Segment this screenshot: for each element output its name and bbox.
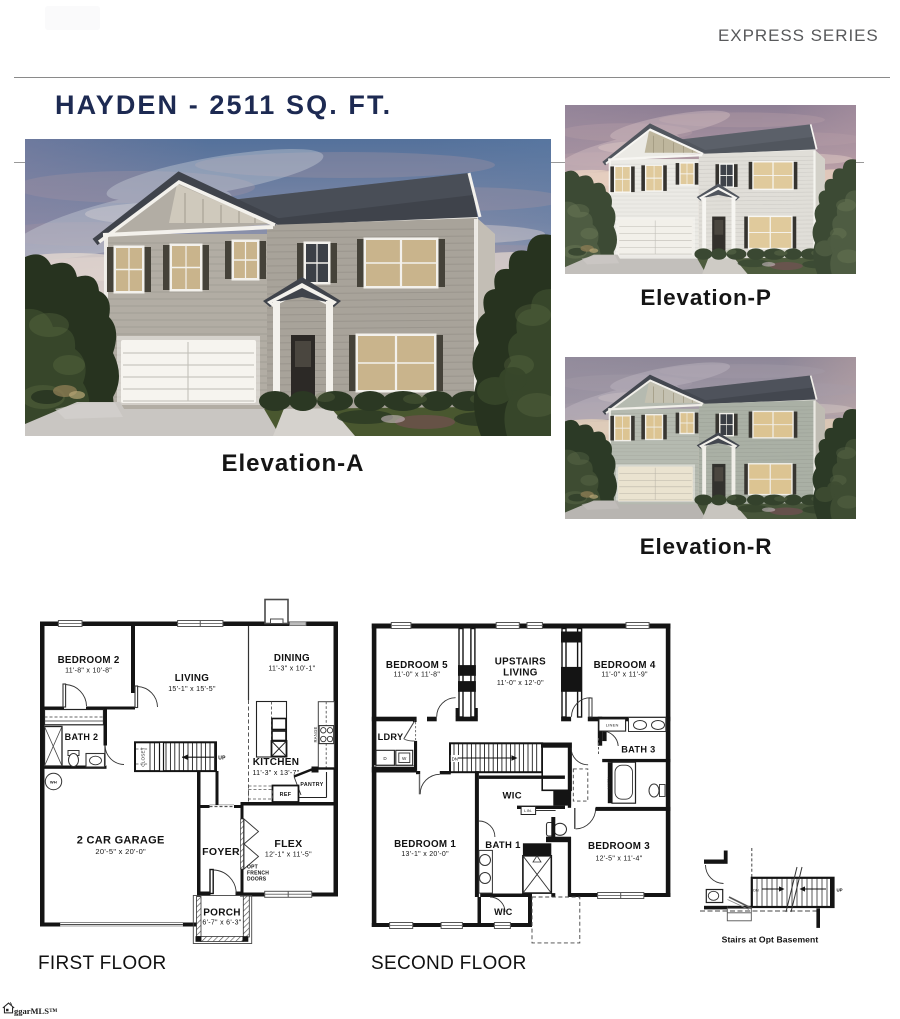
svg-text:13'-1" x 20'-0": 13'-1" x 20'-0": [401, 851, 449, 858]
svg-text:LINEN: LINEN: [607, 777, 611, 789]
svg-text:2 CAR GARAGE: 2 CAR GARAGE: [77, 835, 165, 847]
svg-text:BEDROOM 4: BEDROOM 4: [594, 660, 656, 671]
svg-text:DN: DN: [452, 757, 458, 762]
svg-text:KITCHEN: KITCHEN: [253, 757, 300, 768]
svg-text:15'-1" x 15'-5": 15'-1" x 15'-5": [168, 686, 216, 693]
svg-text:11'-3" x 13'-7": 11'-3" x 13'-7": [252, 770, 299, 777]
svg-text:BEDROOM 2: BEDROOM 2: [58, 655, 120, 666]
svg-text:12'-1" x 11'-5": 12'-1" x 11'-5": [265, 852, 312, 859]
svg-text:UPSTAIRS: UPSTAIRS: [495, 657, 546, 668]
svg-text:DN: DN: [753, 889, 759, 893]
svg-text:UP: UP: [837, 888, 843, 893]
svg-text:11'-0" x 11'-8": 11'-0" x 11'-8": [394, 672, 441, 679]
svg-text:PANTRY: PANTRY: [300, 782, 323, 788]
svg-text:20'-5" x 20'-0": 20'-5" x 20'-0": [95, 847, 146, 856]
svg-text:FOYER: FOYER: [202, 846, 240, 858]
svg-text:LIVING: LIVING: [175, 673, 210, 684]
svg-text:DINING: DINING: [274, 653, 310, 664]
svg-text:FLEX: FLEX: [274, 838, 302, 850]
svg-text:DOORS: DOORS: [247, 877, 267, 883]
svg-text:LINEN: LINEN: [606, 723, 619, 728]
svg-text:WIC: WIC: [503, 791, 522, 802]
svg-text:BEDROOM 3: BEDROOM 3: [588, 841, 650, 852]
svg-text:CLOSET: CLOSET: [141, 747, 146, 767]
svg-text:11'-3" x 10'-1": 11'-3" x 10'-1": [268, 666, 315, 673]
svg-text:LDRY: LDRY: [378, 732, 404, 742]
svg-text:WIC: WIC: [494, 907, 513, 917]
svg-text:BATH 1: BATH 1: [485, 840, 521, 851]
svg-text:RANGE: RANGE: [313, 727, 318, 743]
svg-text:WH: WH: [50, 780, 57, 785]
svg-text:BEDROOM 1: BEDROOM 1: [394, 839, 456, 850]
svg-text:BEDROOM 5: BEDROOM 5: [386, 660, 448, 671]
svg-text:6'-7" x 6'-3": 6'-7" x 6'-3": [202, 920, 241, 927]
svg-text:UP: UP: [218, 756, 226, 762]
svg-text:LIVING: LIVING: [503, 668, 538, 679]
svg-text:REF: REF: [280, 792, 292, 798]
svg-text:Stairs at Opt Basement: Stairs at Opt Basement: [722, 935, 819, 945]
svg-text:LIN.: LIN.: [524, 809, 532, 813]
svg-text:12'-5" x 11'-4": 12'-5" x 11'-4": [595, 856, 642, 863]
svg-text:11'-0" x 12'-0": 11'-0" x 12'-0": [497, 680, 544, 687]
svg-text:BATH 3: BATH 3: [621, 745, 655, 755]
svg-text:11'-0" x 11'-9": 11'-0" x 11'-9": [601, 672, 648, 679]
svg-text:11'-8" x 10'-8": 11'-8" x 10'-8": [65, 668, 112, 675]
svg-text:PORCH: PORCH: [203, 908, 241, 919]
svg-text:BATH 2: BATH 2: [65, 732, 99, 742]
svg-text:W: W: [402, 756, 407, 761]
